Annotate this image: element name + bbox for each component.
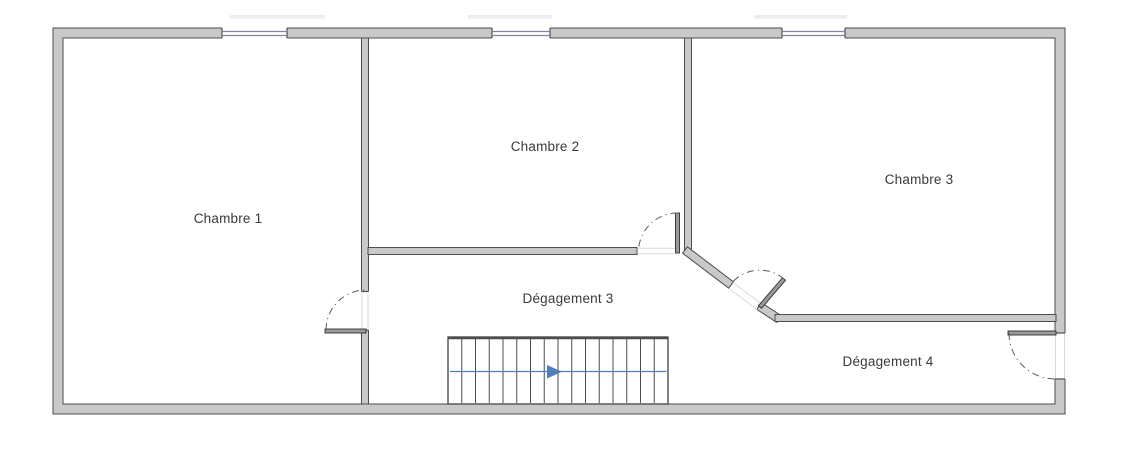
floor-plan: Chambre 1 Chambre 2 Chambre 3 Dégagement…	[0, 0, 1135, 462]
door-swing-arc	[326, 290, 366, 330]
door-swing-arc	[731, 270, 784, 284]
door-degagement4	[1008, 331, 1066, 379]
room-label-chambre-1: Chambre 1	[194, 211, 263, 226]
window-overhang-line	[230, 15, 325, 19]
room-chambre-3: Chambre 3	[885, 172, 954, 187]
wall-chambre2-chambre3-divider	[685, 38, 692, 252]
wall-chambre2-bottom	[368, 248, 637, 255]
wall-chambre1-divider	[362, 38, 369, 404]
room-chambre-2: Chambre 2	[511, 139, 580, 154]
room-label-chambre-3: Chambre 3	[885, 172, 954, 187]
window-overhang-line	[754, 15, 847, 19]
door-diagonal	[729, 270, 786, 309]
door-leaf	[1008, 331, 1056, 335]
room-label-degagement-4: Dégagement 4	[843, 354, 934, 369]
room-degagement-4: Dégagement 4	[843, 354, 934, 369]
floor-plan-drawing: Chambre 1 Chambre 2 Chambre 3 Dégagement…	[0, 0, 1135, 462]
door-leaf	[759, 278, 786, 309]
window-overhang-line	[468, 15, 552, 19]
door-chambre1	[325, 290, 369, 333]
window-3	[781, 27, 846, 39]
wall-chambre3-bottom	[775, 315, 1056, 322]
room-degagement-3: Dégagement 3	[523, 291, 614, 306]
staircase	[448, 337, 668, 404]
door-degagement3	[638, 213, 680, 254]
window-2	[491, 27, 551, 39]
window-1	[221, 27, 288, 39]
door-swing-arc	[1009, 333, 1055, 379]
room-label-chambre-2: Chambre 2	[511, 139, 580, 154]
room-label-degagement-3: Dégagement 3	[523, 291, 614, 306]
door-leaf	[325, 329, 366, 333]
door-leaf	[676, 213, 680, 253]
room-chambre-1: Chambre 1	[194, 211, 263, 226]
wall-diagonal	[683, 247, 734, 288]
door-swing-arc	[639, 213, 678, 250]
